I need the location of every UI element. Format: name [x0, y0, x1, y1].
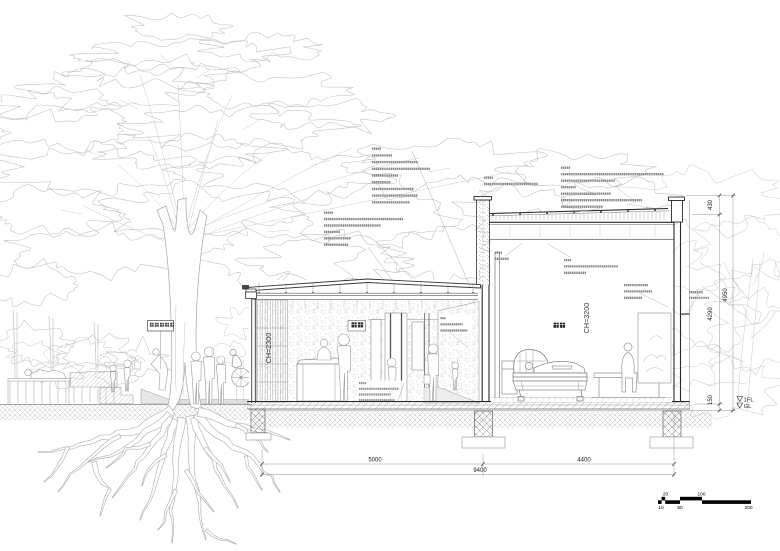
svg-text:GL: GL [744, 404, 753, 410]
svg-text:10: 10 [658, 505, 664, 511]
svg-text:20: 20 [663, 492, 669, 498]
svg-text:150: 150 [708, 394, 714, 405]
svg-text:50: 50 [677, 505, 683, 511]
svg-text:9400: 9400 [473, 468, 487, 474]
svg-text:CH=2300: CH=2300 [264, 333, 273, 364]
svg-text:200: 200 [744, 505, 752, 511]
svg-text:5000: 5000 [368, 458, 382, 464]
svg-text:4950: 4950 [723, 288, 729, 302]
svg-text:4290: 4290 [708, 307, 714, 321]
svg-text:4400: 4400 [577, 458, 591, 464]
svg-text:100: 100 [697, 492, 705, 498]
svg-text:CH=3200: CH=3200 [582, 303, 591, 334]
svg-text:430: 430 [708, 199, 714, 210]
svg-text:1FL: 1FL [744, 398, 755, 404]
